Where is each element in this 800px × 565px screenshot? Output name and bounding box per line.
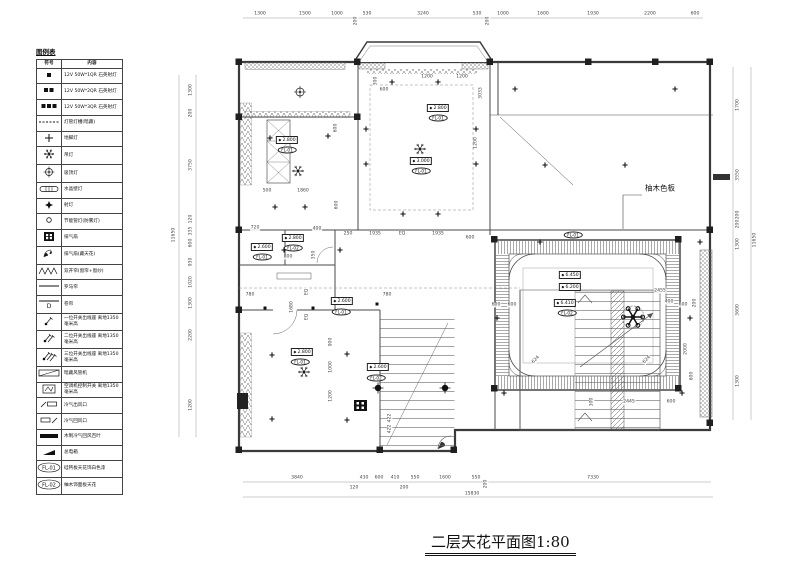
door-swing-icon [273, 310, 297, 334]
svg-text:FL-02: FL-02 [42, 483, 56, 489]
snow-icon [37, 147, 62, 165]
legend-row: 一位开关出线座 离地1350毫米高 [37, 313, 123, 331]
legend-row-label: 灯管灯槽(暗藏) [62, 115, 123, 131]
sw1-icon [37, 313, 62, 331]
switch-outlet-icons [264, 303, 379, 310]
legend-row: 水晶壁灯 [37, 182, 123, 198]
exhaust-fan-icon [354, 400, 367, 411]
ceiling-lamp-icon [294, 86, 306, 98]
legend-row-label: 排气扇 [62, 230, 123, 247]
legend-row: FL-01硅钙板天花饰白色漆 [37, 461, 123, 478]
sq3-icon [37, 100, 62, 116]
legend-row: 排气扇(藏天花) [37, 246, 123, 264]
legend-row-label: 吸顶灯 [62, 165, 123, 183]
legend-row-label: 硅钙板天花饰白色漆 [62, 461, 123, 478]
drawing-sheet: 图例表 符号 内容 12V 50W*1QR 石英射灯12V 50W*2QR 石英… [0, 0, 800, 565]
ceiling-plan: 柚木色板 13001500100020053032405302001000160… [155, 5, 800, 520]
legend-row: 二位开关出线座 离地1350毫米高 [37, 331, 123, 349]
legend-row: 地脚灯 [37, 131, 123, 147]
target-icon [37, 165, 62, 183]
dash-icon [37, 115, 62, 131]
legend-row: FL-02柚木饰面板天花 [37, 478, 123, 495]
legend-row-label: 木制冷气回风百叶 [62, 429, 123, 445]
acsw-icon [37, 382, 62, 398]
legend-row-label: 12V 50W*2QR 石英射灯 [62, 84, 123, 100]
fl-icon: FL-01 [37, 461, 62, 478]
pendant-lamp-icon [299, 367, 310, 377]
legend-row-label: 双开帘(窗帘+窗纱) [62, 264, 123, 280]
legend-row: 总电箱 [37, 445, 123, 461]
wall-stub [713, 174, 730, 180]
legend-title: 图例表 [36, 46, 124, 56]
legend-row: 冷气出风口 [37, 398, 123, 414]
legend-row: 双开帘(窗帘+窗纱) [37, 264, 123, 280]
legend-row: 吸顶灯 [37, 165, 123, 183]
sw2-icon [37, 331, 62, 349]
legend-row: 射灯 [37, 198, 123, 214]
legend-row: 12V 50W*3QR 石英射灯 [37, 100, 123, 116]
plus-icon [37, 131, 62, 147]
line-icon [37, 280, 62, 296]
curtain-icon [241, 333, 252, 437]
legend-row: 节能管灯(防雾灯) [37, 214, 123, 230]
blk-icon [37, 445, 62, 461]
counter-icon [277, 273, 311, 279]
circ-icon [37, 214, 62, 230]
svg-text:D: D [47, 303, 52, 309]
legend-row-label: 排气扇(藏天花) [62, 246, 123, 264]
window-hatch-icon [359, 63, 385, 69]
legend-row: 吊灯 [37, 147, 123, 165]
plan-drawing [155, 5, 800, 520]
fan-icon [37, 246, 62, 264]
window-hatch-icon [700, 250, 712, 417]
legend-row-label: 12V 50W*3QR 石英射灯 [62, 100, 123, 116]
curtain-icon [245, 112, 350, 118]
electric-box-icon [237, 393, 248, 409]
legend-row-label: 空调机控制开关 离地1350毫米高 [62, 382, 123, 398]
legend-row-label: 射灯 [62, 198, 123, 214]
legend-col-symbol: 符号 [37, 60, 62, 69]
legend-row: D卷帘 [37, 296, 123, 314]
legend-row: 12V 50W*2QR 石英射灯 [37, 84, 123, 100]
legend-grid: 符号 内容 12V 50W*1QR 石英射灯12V 50W*2QR 石英射灯12… [36, 59, 123, 495]
window-hatch-icon [462, 63, 488, 69]
vent1-icon [37, 398, 62, 414]
sq1-icon [37, 68, 62, 84]
legend-row-label: 冷气出风口 [62, 398, 123, 414]
legend-row-label: 罗马帘 [62, 280, 123, 296]
legend-row-label: 柚木饰面板天花 [62, 478, 123, 495]
legend-row: 三位开关出线座 离地1350毫米高 [37, 349, 123, 367]
sw3-icon [37, 349, 62, 367]
legend-row-label: 三位开关出线座 离地1350毫米高 [62, 349, 123, 367]
legend-row-label: 冷气回风口 [62, 414, 123, 430]
window-hatch-icon [245, 63, 345, 70]
star-icon [37, 198, 62, 214]
pill-icon [37, 182, 62, 198]
dimension-lines [179, 18, 751, 497]
legend-table: 图例表 符号 内容 12V 50W*1QR 石英射灯12V 50W*2QR 石英… [36, 46, 124, 495]
curtain-icon [367, 69, 477, 74]
legend-row-label: 卷帘 [62, 296, 123, 314]
legend-row: 灯管灯槽(暗藏) [37, 115, 123, 131]
legend-row-label: 暗藏风管机 [62, 366, 123, 382]
pendant-lamp-icon [415, 144, 426, 154]
legend-row: 暗藏风管机 [37, 366, 123, 382]
legend-row: 冷气回风口 [37, 414, 123, 430]
legend-row: 排气扇 [37, 230, 123, 247]
legend-row-label: 水晶壁灯 [62, 182, 123, 198]
fl-icon: FL-02 [37, 478, 62, 495]
legend-row: 空调机控制开关 离地1350毫米高 [37, 382, 123, 398]
stairs [273, 247, 660, 450]
drawing-title: 二层天花平面图1:80 [425, 531, 576, 556]
legend-row-label: 二位开关出线座 离地1350毫米高 [62, 331, 123, 349]
legend-row-label: 一位开关出线座 离地1350毫米高 [62, 313, 123, 331]
legend-row-label: 地脚灯 [62, 131, 123, 147]
sq2-icon [37, 84, 62, 100]
legend-row-label: 总电箱 [62, 445, 123, 461]
zig-icon [37, 264, 62, 280]
note-leader-line [623, 195, 642, 229]
curtain-icon [241, 103, 252, 185]
legend-row-label: 节能管灯(防雾灯) [62, 214, 123, 230]
legend-row: 罗马帘 [37, 280, 123, 296]
legend-row: 12V 50W*1QR 石英射灯 [37, 68, 123, 84]
legend-col-content: 内容 [62, 60, 123, 69]
lineD-icon: D [37, 296, 62, 314]
legend-row-label: 吊灯 [62, 147, 123, 165]
grid-icon [37, 230, 62, 247]
vent2-icon [37, 414, 62, 430]
legend-row: 木制冷气回风百叶 [37, 429, 123, 445]
door-swing-icon [317, 247, 333, 263]
pendant-lamp-icon [293, 166, 304, 176]
legend-header-row: 符号 内容 [37, 60, 123, 69]
svg-text:FL-01: FL-01 [42, 466, 56, 472]
bar-icon [37, 429, 62, 445]
legend-row-label: 12V 50W*1QR 石英射灯 [62, 68, 123, 84]
duct-icon [37, 366, 62, 382]
